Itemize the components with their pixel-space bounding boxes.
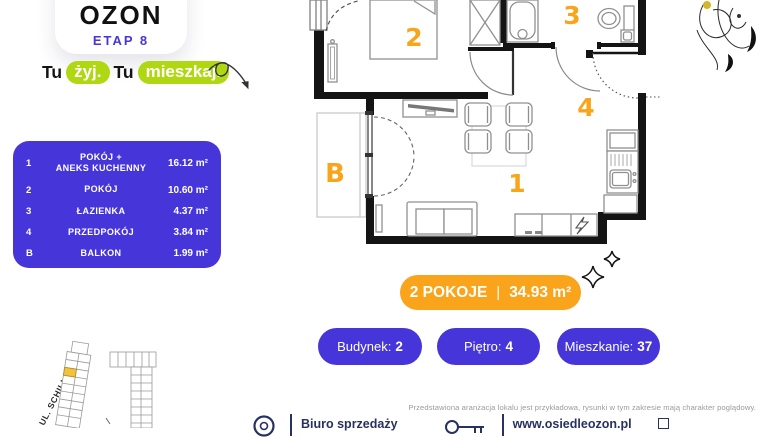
decorative-line-art — [683, 0, 760, 78]
room2-label: 2 — [405, 23, 422, 52]
brand-logo: OZON — [79, 2, 162, 28]
badge-separator: | — [496, 284, 500, 301]
footer-divider — [290, 414, 292, 436]
footer-contact-bar: Biuro sprzedaży www.osiedleozon.pl — [252, 414, 669, 438]
bathtub — [507, 0, 538, 42]
tagline: Tu żyj. Tu mieszkaj. — [42, 61, 229, 84]
room-name: ŁAZIENKA — [44, 206, 158, 217]
rooms-count: 2 POKOJE — [410, 284, 488, 302]
brand-logo-card: OZON ETAP 8 — [55, 0, 187, 54]
bathroom-sink — [621, 30, 634, 42]
brand-stage: ETAP 8 — [93, 33, 149, 48]
tagline-word: Tu — [114, 62, 134, 83]
table-row: B BALKON 1.99 m² — [26, 248, 208, 259]
sales-office-label: Biuro sprzedaży — [301, 417, 398, 431]
window — [310, 0, 327, 30]
floor-pill: Piętro: 4 — [437, 328, 540, 365]
room-name: PRZEDPOKÓJ — [44, 227, 158, 238]
radiator — [376, 205, 382, 232]
room3-label: 3 — [563, 1, 580, 30]
flyer-page: { "brand": { "logo": "OZON", "stage": "E… — [0, 0, 760, 428]
sparkle-icon — [582, 251, 620, 288]
room-name: POKÓJ — [44, 184, 158, 195]
table-row: 2 POKÓJ 10.60 m² — [26, 184, 208, 195]
balcony-label: B — [325, 159, 345, 189]
room-number: B — [26, 248, 44, 259]
footer-divider — [502, 414, 504, 436]
highlighted-unit — [63, 367, 76, 377]
room1-label: 1 — [508, 169, 525, 198]
total-area: 34.93 m² — [509, 284, 571, 302]
curly-arrow-icon — [207, 56, 259, 102]
room-number: 2 — [26, 185, 44, 196]
rooms-table: 1 POKÓJ + ANEKS KUCHENNY 16.12 m² 2 POKÓ… — [13, 141, 221, 268]
tagline-word: Tu — [42, 62, 62, 83]
building-pill: Budynek: 2 — [318, 328, 422, 365]
fridge — [604, 195, 637, 213]
square-icon — [658, 418, 669, 429]
sofa — [407, 202, 477, 236]
room-area: 4.37 m² — [158, 206, 208, 217]
tv-stand — [403, 100, 457, 117]
location-circle-icon — [252, 414, 276, 438]
room-area: 1.99 m² — [158, 248, 208, 259]
building-b — [106, 352, 156, 428]
website-link[interactable]: www.osiedleozon.pl — [513, 417, 632, 431]
room-number: 1 — [26, 158, 44, 169]
apartment-number-pill: Mieszkanie: 37 — [557, 328, 660, 365]
kitchen-counter — [604, 130, 638, 213]
room4-label: 4 — [577, 93, 594, 122]
floor-plan: 1 2 3 4 B — [305, 0, 660, 300]
table-row: 1 POKÓJ + ANEKS KUCHENNY 16.12 m² — [26, 152, 208, 175]
room-name: BALKON — [44, 248, 158, 259]
key-icon — [444, 416, 488, 438]
table-row: 4 PRZEDPOKÓJ 3.84 m² — [26, 227, 208, 238]
toilet — [598, 6, 634, 31]
table-row: 3 ŁAZIENKA 4.37 m² — [26, 206, 208, 217]
apartment-summary-badge: 2 POKOJE | 34.93 m² — [400, 275, 581, 310]
radiator — [328, 44, 337, 82]
wardrobe — [470, 0, 500, 45]
room-area: 10.60 m² — [158, 185, 208, 196]
disclaimer-text: Przedstawiona aranżacja lokalu jest przy… — [260, 403, 756, 412]
site-mini-map: UL. SCHILLINGA — [18, 340, 188, 428]
room-area: 3.84 m² — [158, 227, 208, 238]
room-number: 4 — [26, 227, 44, 238]
tagline-highlight: żyj. — [66, 61, 109, 84]
room-number: 3 — [26, 206, 44, 217]
kitchen-bottom-counter — [515, 214, 597, 236]
room-name: POKÓJ + ANEKS KUCHENNY — [44, 152, 158, 175]
room-area: 16.12 m² — [158, 158, 208, 169]
